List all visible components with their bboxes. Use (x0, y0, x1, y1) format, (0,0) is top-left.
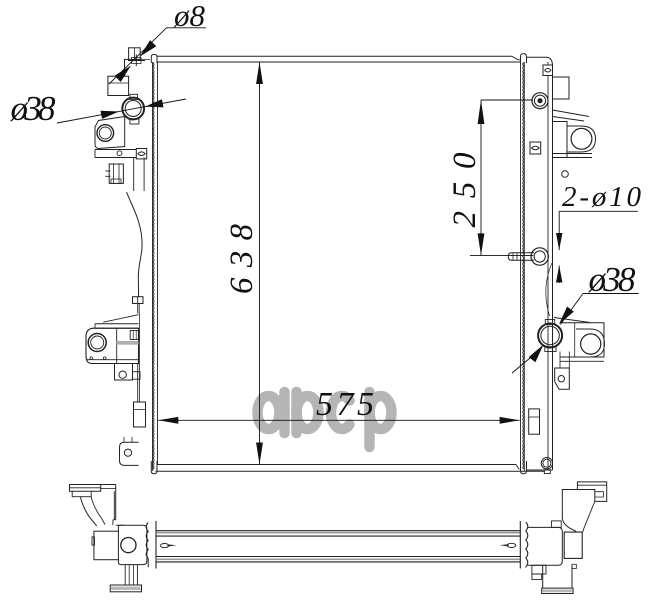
svg-text:575: 575 (316, 386, 374, 423)
svg-text:ø38: ø38 (10, 89, 57, 128)
svg-text:2-ø10: 2-ø10 (562, 181, 642, 213)
svg-text:638: 638 (224, 224, 260, 295)
svg-text:250: 250 (447, 152, 483, 228)
